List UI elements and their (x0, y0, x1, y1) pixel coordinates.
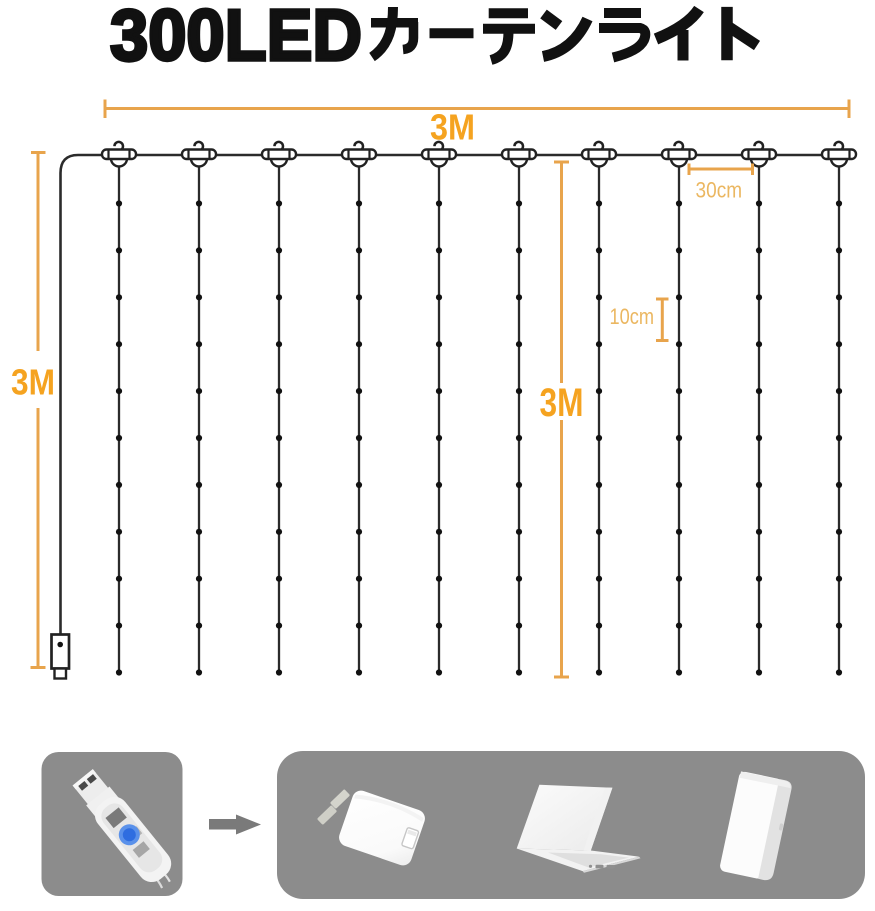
svg-text:3M: 3M (540, 381, 584, 425)
svg-text:10cm: 10cm (610, 304, 655, 329)
svg-text:3M: 3M (11, 362, 55, 403)
svg-text:300LED: 300LED (110, 0, 362, 76)
svg-text:30cm: 30cm (696, 178, 743, 203)
